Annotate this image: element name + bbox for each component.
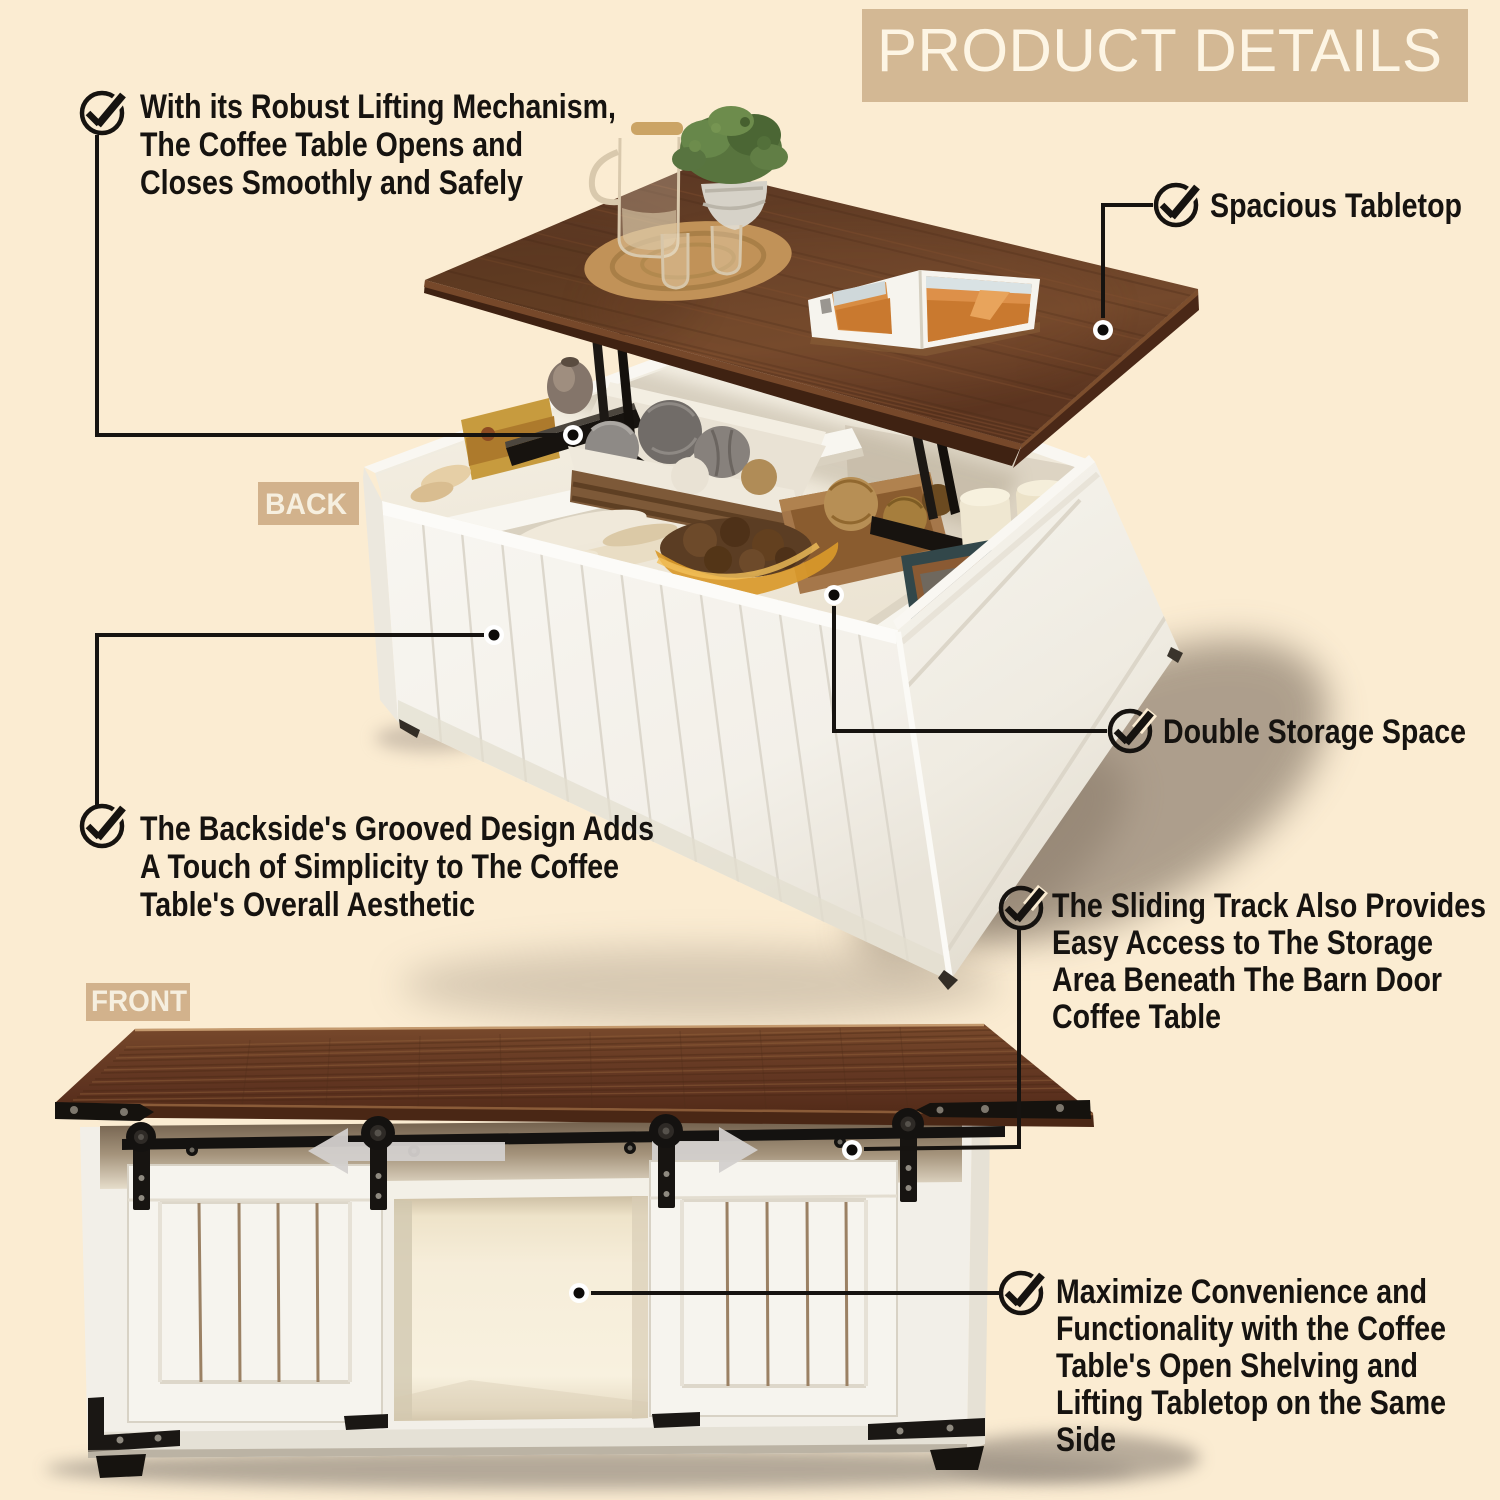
svg-text:Coffee Table: Coffee Table <box>1052 998 1221 1036</box>
svg-text:Double Storage Space: Double Storage Space <box>1163 713 1466 751</box>
svg-text:PRODUCT DETAILS: PRODUCT DETAILS <box>877 17 1442 84</box>
svg-text:Functionality with the Coffee: Functionality with the Coffee <box>1056 1310 1446 1348</box>
svg-text:Lifting Tabletop on the Same: Lifting Tabletop on the Same <box>1056 1384 1446 1422</box>
svg-text:The Coffee Table Opens and: The Coffee Table Opens and <box>140 126 523 164</box>
svg-text:Maximize Convenience and: Maximize Convenience and <box>1056 1273 1427 1311</box>
svg-text:Easy Access to The Storage: Easy Access to The Storage <box>1052 924 1433 962</box>
svg-text:Table's Overall Aesthetic: Table's Overall Aesthetic <box>140 886 475 924</box>
svg-text:Area Beneath The Barn Door: Area Beneath The Barn Door <box>1052 961 1442 999</box>
svg-text:Spacious Tabletop: Spacious Tabletop <box>1210 187 1462 225</box>
svg-text:A Touch of Simplicity to The C: A Touch of Simplicity to The Coffee <box>140 848 619 886</box>
svg-text:Side: Side <box>1056 1421 1116 1459</box>
svg-text:Table's Open Shelving and: Table's Open Shelving and <box>1056 1347 1418 1385</box>
svg-text:The Sliding Track Also Provide: The Sliding Track Also Provides <box>1052 887 1486 925</box>
svg-text:BACK: BACK <box>265 488 347 521</box>
svg-text:FRONT: FRONT <box>91 985 187 1018</box>
svg-text:The Backside's Grooved Design: The Backside's Grooved Design Adds <box>140 810 654 848</box>
svg-text:With its Robust Lifting Mechan: With its Robust Lifting Mechanism, <box>140 88 616 126</box>
svg-text:Closes Smoothly and Safely: Closes Smoothly and Safely <box>140 164 523 202</box>
